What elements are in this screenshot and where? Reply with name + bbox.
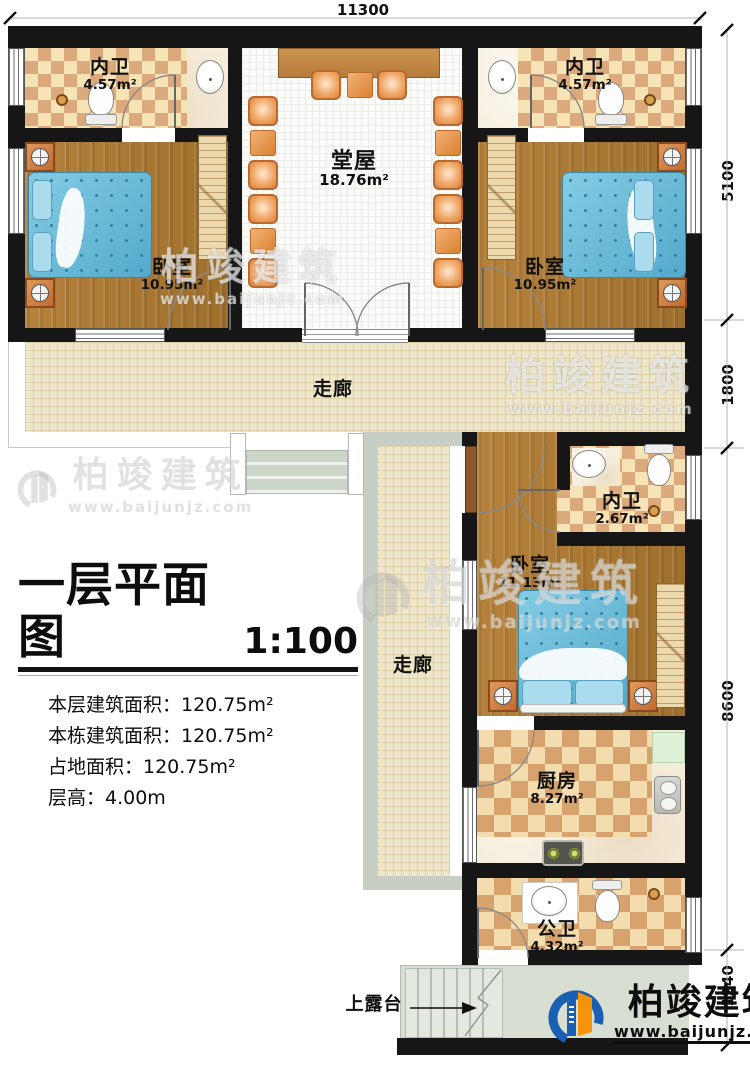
chair — [377, 70, 407, 100]
entry-steps — [246, 450, 348, 494]
stairs — [405, 968, 503, 1038]
window — [8, 148, 25, 234]
wall-top — [8, 26, 702, 48]
bed-headboard — [520, 704, 626, 713]
room-label-bedroom-left: 卧室 10.95m² — [122, 258, 222, 292]
wall-bedroom-mid-bottom — [534, 716, 685, 730]
burner — [548, 848, 559, 859]
page-title: 一层平面图 — [18, 560, 229, 663]
dim-right-1800: 1800 — [719, 350, 737, 420]
chair — [311, 70, 341, 100]
corridor-v-edge-left — [363, 432, 377, 890]
window — [75, 328, 165, 342]
room-label-bedroom-mid: 卧室 11.13m² — [480, 556, 580, 590]
window — [685, 148, 702, 234]
title-underline-thin — [18, 675, 358, 676]
sink — [572, 450, 606, 478]
title-underline — [18, 667, 358, 672]
wall-hall-left — [228, 48, 242, 328]
door-leaf-bedroom-mid — [465, 446, 477, 513]
floor-plan: 11300 5100 1800 8600 1240 内卫 4.57m² 内卫 4… — [0, 0, 750, 1066]
wall-wing-left-a — [462, 513, 477, 560]
nightstand-lamp — [663, 284, 681, 302]
chair — [248, 194, 278, 224]
towel-ring — [56, 94, 68, 106]
info-building-area: 本栋建筑面积：120.75m² — [48, 721, 358, 752]
nightstand — [628, 680, 658, 712]
tea-table — [347, 72, 373, 98]
window — [8, 48, 25, 106]
dim-top: 11300 — [328, 1, 398, 19]
wall-wing-left-b — [462, 630, 477, 787]
watermark: 柏竣建筑 www.baijunjz.com — [14, 458, 253, 515]
room-label-hall: 堂屋 18.76m² — [304, 150, 404, 189]
brand-url: www.baijunjz.com — [614, 1024, 750, 1044]
sink-basin — [660, 797, 677, 811]
chair — [433, 258, 463, 288]
nightstand-lamp — [494, 687, 512, 705]
nightstand — [25, 142, 55, 172]
sink — [531, 886, 567, 916]
nightstand — [25, 278, 55, 308]
nightstand-lamp — [634, 687, 652, 705]
tea-table — [250, 130, 276, 156]
nightstand — [657, 278, 687, 308]
tea-table — [250, 228, 276, 254]
pillow — [32, 232, 52, 272]
wall-bath-mid-bottom — [557, 532, 685, 546]
toilet-tank — [595, 114, 627, 125]
corridor-v-edge-bottom — [363, 876, 463, 890]
chair — [248, 160, 278, 190]
pillow — [634, 180, 654, 220]
drain — [588, 464, 591, 467]
room-label-terrace: 上露台 — [340, 996, 408, 1015]
drain — [209, 78, 212, 81]
watermark-brand: 柏竣建筑 — [73, 458, 249, 494]
window — [685, 48, 702, 106]
info-ground-area: 占地面积：120.75m² — [48, 752, 358, 783]
window — [545, 328, 635, 342]
title-block: 一层平面图 1:100 本层建筑面积：120.75m² 本栋建筑面积：120.7… — [18, 560, 358, 814]
toilet-tank — [644, 444, 674, 454]
room-label-bedroom-right: 卧室 10.95m² — [495, 258, 595, 292]
corridor-v-strip — [450, 446, 462, 876]
kitchen-sink — [654, 776, 681, 814]
window — [685, 455, 702, 520]
drain — [548, 901, 551, 904]
step-post-left — [230, 433, 246, 495]
step-post-right — [348, 433, 364, 495]
drain — [501, 78, 504, 81]
chair — [433, 96, 463, 126]
sink — [196, 60, 224, 94]
dim-right-8600: 8600 — [719, 666, 737, 736]
pillow — [522, 680, 572, 706]
room-label-corridor-h: 走廊 — [303, 380, 363, 400]
hall-threshold — [302, 329, 408, 343]
chair — [248, 258, 278, 288]
nightstand-lamp — [31, 284, 49, 302]
watermark-logo-icon — [14, 459, 60, 515]
brand-logo-icon — [544, 982, 608, 1046]
nightstand — [488, 680, 518, 712]
window — [462, 787, 477, 863]
toilet-tank — [592, 880, 622, 890]
nightstand — [657, 142, 687, 172]
wardrobe — [487, 135, 516, 260]
toilet — [595, 890, 620, 922]
pillow — [32, 180, 52, 220]
room-label-bath-tl: 内卫 4.57m² — [60, 58, 160, 92]
watermark-url: www.baijunjz.com — [68, 500, 253, 515]
toilet-tank — [85, 114, 117, 125]
corridor-v-edge-top — [363, 432, 463, 446]
stove — [542, 840, 584, 866]
sink — [488, 60, 516, 94]
room-label-bath-tr: 内卫 4.57m² — [535, 58, 635, 92]
tea-table — [435, 228, 461, 254]
wall-hall-right — [462, 48, 478, 328]
toilet — [647, 454, 671, 486]
towel-ring — [648, 888, 660, 900]
info-floor-area: 本层建筑面积：120.75m² — [48, 690, 358, 721]
nightstand-lamp — [663, 148, 681, 166]
wardrobe — [656, 583, 685, 708]
brand-name: 柏竣建筑 — [628, 985, 750, 1021]
tea-table — [435, 130, 461, 156]
brand-logo: 柏竣建筑 www.baijunjz.com — [544, 982, 750, 1046]
wall-bath-public-a — [462, 950, 478, 965]
info-storey-height: 层高：4.00m — [48, 783, 358, 814]
chair — [433, 160, 463, 190]
wall-bath-tl-a — [25, 128, 122, 142]
platform-edge-bottom — [8, 447, 232, 448]
chair — [248, 96, 278, 126]
wall-bath-tr-b — [584, 128, 685, 142]
room-label-corridor-v: 走廊 — [383, 656, 443, 676]
towel-ring — [644, 94, 656, 106]
nightstand-lamp — [31, 148, 49, 166]
pillow — [575, 680, 624, 706]
dim-right-5100: 5100 — [719, 146, 737, 216]
drawing-scale: 1:100 — [243, 620, 358, 663]
wall-bath-mid-left — [557, 446, 570, 490]
sink-basin — [660, 781, 677, 795]
window — [462, 560, 477, 630]
room-label-bath-public: 公卫 4.32m² — [507, 920, 607, 954]
room-label-bath-mid: 内卫 2.67m² — [582, 492, 662, 526]
wall-wing-col — [462, 432, 477, 446]
window — [685, 897, 702, 953]
burner — [569, 848, 580, 859]
room-label-kitchen: 厨房 8.27m² — [507, 772, 607, 806]
platform-edge-left — [8, 335, 9, 448]
kitchen-mat — [652, 732, 685, 763]
wardrobe — [198, 135, 227, 260]
pillow — [634, 232, 654, 272]
chair — [433, 194, 463, 224]
